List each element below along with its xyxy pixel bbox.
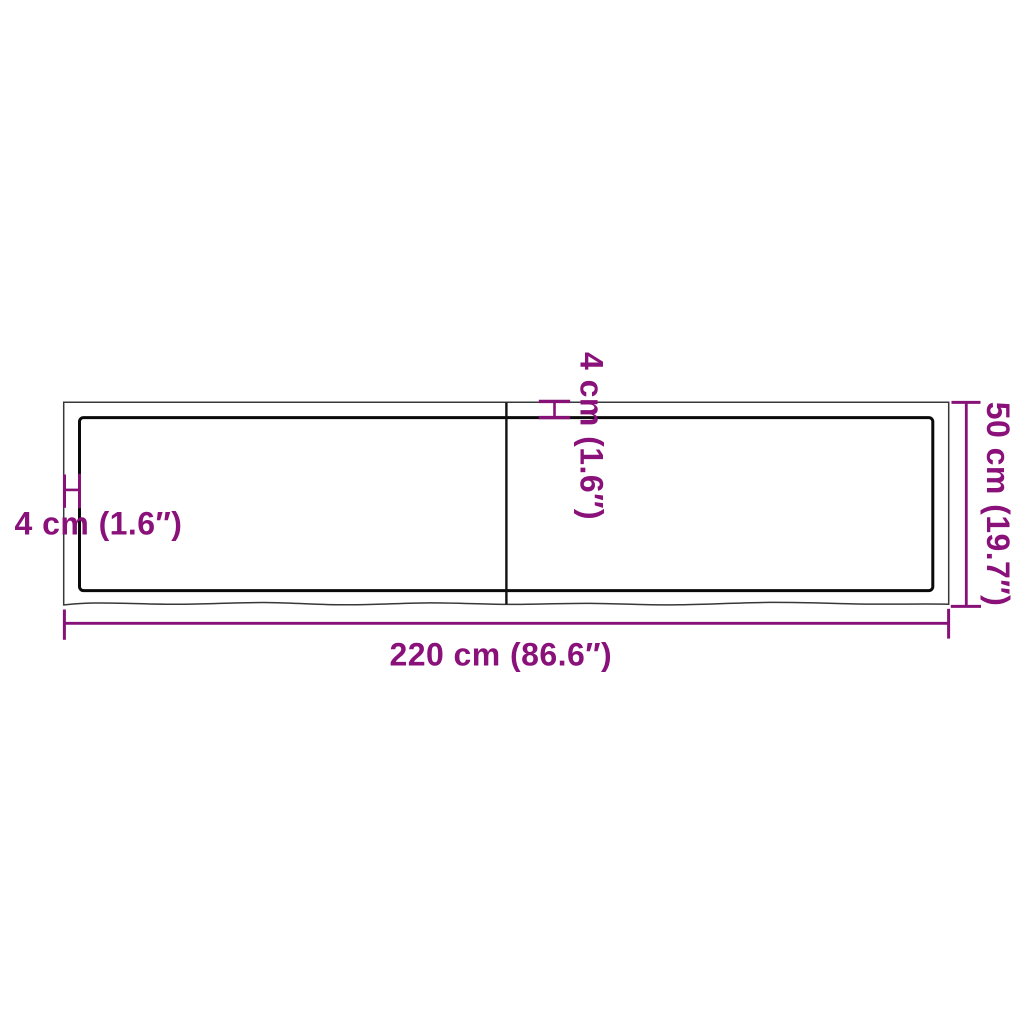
svg-text:220 cm (86.6″): 220 cm (86.6″) xyxy=(389,637,612,673)
svg-text:4 cm (1.6″): 4 cm (1.6″) xyxy=(574,352,610,520)
svg-text:4 cm (1.6″): 4 cm (1.6″) xyxy=(15,506,183,542)
svg-text:50 cm (19.7″): 50 cm (19.7″) xyxy=(980,402,1016,606)
